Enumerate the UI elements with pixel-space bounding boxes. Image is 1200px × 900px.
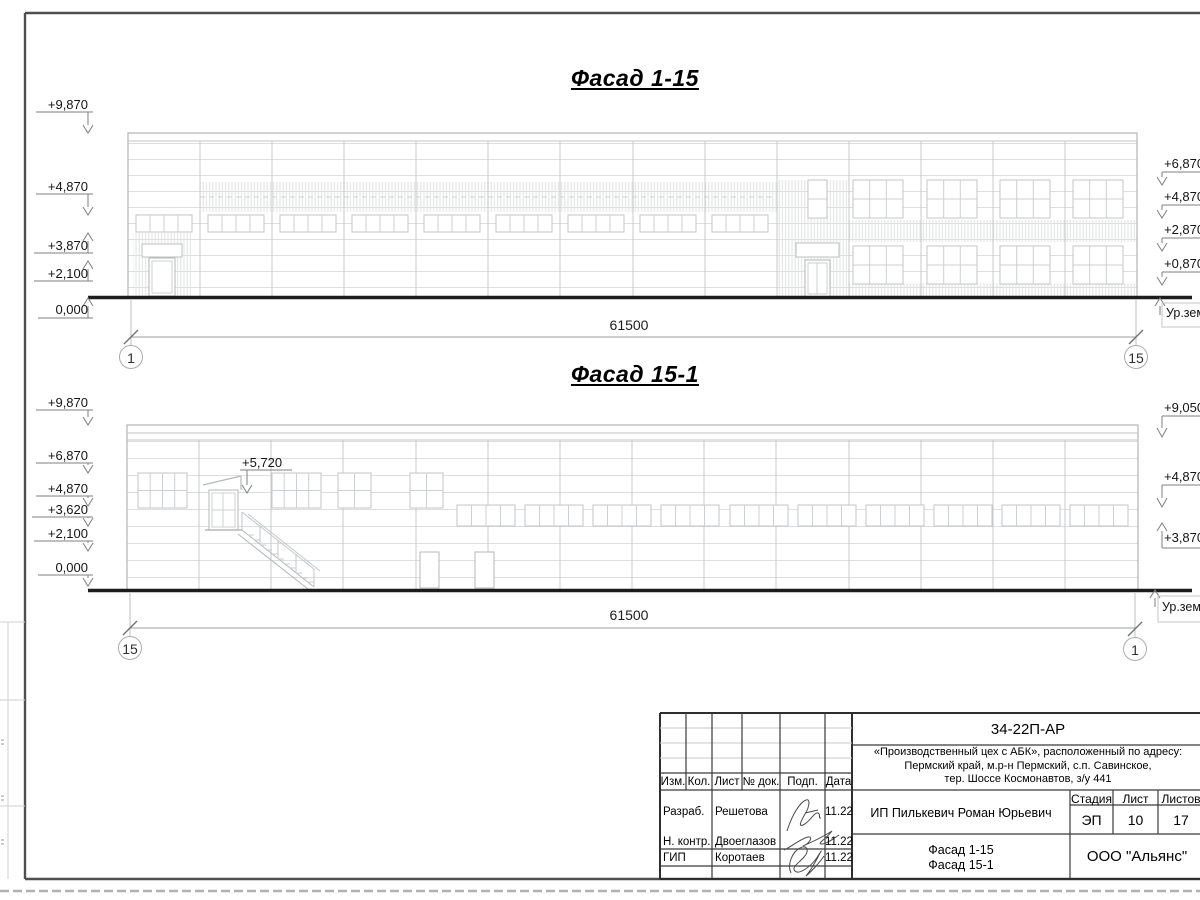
row-role: Разраб. [663, 806, 704, 818]
facade-1-title: Фасад 1-15 [485, 65, 785, 92]
facade-1-15-drawing [88, 133, 1192, 298]
elevation-label: +4,870 [34, 481, 88, 496]
row-name: Двоеглазов [715, 836, 776, 848]
sheets-value: 17 [1158, 812, 1200, 828]
project-address-line: «Производственный цех с АБК», расположен… [856, 746, 1200, 760]
row-role: ГИП [663, 852, 686, 864]
stair-elevation-label: +5,720 [242, 455, 282, 470]
col-izm: Изм. [660, 776, 686, 788]
row-date: 11.22 [825, 836, 852, 848]
project-address-line: Пермский край, м.р-н Пермский, с.п. Сави… [856, 760, 1200, 774]
col-list: Лист [712, 776, 742, 788]
dimension-61500: 61500 [529, 317, 729, 333]
elevation-label: +3,620 [34, 502, 88, 517]
elevation-label: +3,870 [1164, 530, 1200, 545]
elevation-label: +2,100 [34, 266, 88, 281]
company-name: ООО "Альянс" [1070, 848, 1200, 865]
ground-level-label: Ур.земли [1162, 600, 1200, 614]
grid-bubble-1: 1 [1123, 637, 1147, 661]
row-date: 11.22 [825, 852, 852, 864]
col-kol: Кол. [686, 776, 712, 788]
row-name: Коротаев [715, 852, 765, 864]
doc-number: 34-22П-АР [852, 721, 1200, 738]
signature-gip [790, 847, 824, 876]
elevation-label: 0,000 [34, 560, 88, 575]
elevation-label: +9,870 [34, 97, 88, 112]
side-stamp-partial [0, 622, 25, 879]
row-role: Н. контр. [663, 836, 710, 848]
project-address: «Производственный цех с АБК», расположен… [856, 746, 1200, 787]
elevation-label: +9,050 [1164, 400, 1200, 415]
ground-level-label: Ур.земли [1166, 306, 1200, 320]
drawing-title-cell: Фасад 1-15 Фасад 15-1 [852, 843, 1070, 873]
elevation-label: +6,870 [1164, 156, 1200, 171]
col-podp: Подп. [780, 776, 825, 788]
facade-2-title: Фасад 15-1 [485, 361, 785, 388]
row-name: Решетова [715, 806, 768, 818]
sheet-value: 10 [1113, 812, 1158, 828]
drawing-title-line: Фасад 1-15 [852, 843, 1070, 858]
elevation-label: +4,870 [1164, 189, 1200, 204]
elevation-label: +2,870 [1164, 222, 1200, 237]
signature-razrab [787, 800, 821, 831]
dimension-61500: 61500 [529, 607, 729, 623]
project-address-line: тер. Шоссе Космонавтов, з/у 441 [856, 773, 1200, 787]
sheets-header: Листов [1158, 792, 1200, 806]
grid-bubble-15: 15 [1124, 345, 1148, 369]
client-name: ИП Пилькевич Роман Юрьевич [852, 806, 1070, 820]
sheet-header: Лист [1113, 792, 1158, 806]
elevation-label: +4,870 [1164, 469, 1200, 484]
drawing-title-line: Фасад 15-1 [852, 858, 1070, 873]
stage-header: Стадия [1070, 792, 1113, 806]
row-date: 11.22 [825, 806, 852, 818]
elevation-label: +0,870 [1164, 256, 1200, 271]
col-ndok: № док. [742, 776, 780, 788]
elevation-label: +2,100 [34, 526, 88, 541]
grid-bubble-15: 15 [118, 636, 142, 660]
elevation-label: +4,870 [34, 179, 88, 194]
facade-15-1-drawing [88, 425, 1192, 591]
elevation-label: +6,870 [34, 448, 88, 463]
elevation-label: +9,870 [34, 395, 88, 410]
col-data: Дата [825, 776, 852, 788]
elevation-label: 0,000 [34, 302, 88, 317]
drawing-sheet: { "facade1": { "title": "Фасад 1-15", "d… [0, 0, 1200, 900]
elevation-label: +3,870 [34, 238, 88, 253]
stage-value: ЭП [1070, 812, 1113, 828]
grid-bubble-1: 1 [119, 345, 143, 369]
